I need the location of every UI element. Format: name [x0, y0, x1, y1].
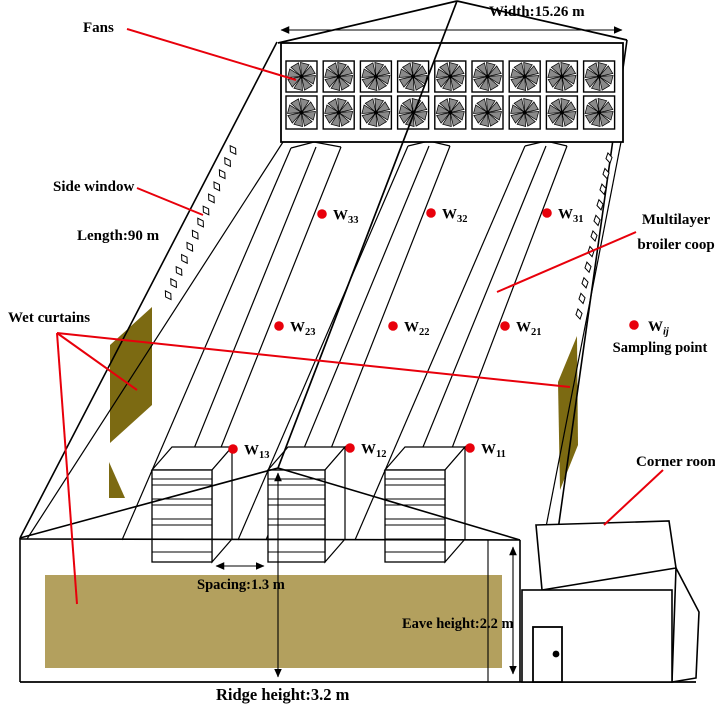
left-eave-line: [20, 42, 277, 538]
fan-icon: [546, 96, 577, 129]
sampling-point: W12: [345, 442, 386, 461]
sampling-point-label: W21: [516, 320, 542, 339]
side-window-icon: [179, 253, 190, 265]
diagram-canvas: W33W32W31W23W22W21W13W12W11 Wij Sampling…: [0, 0, 715, 707]
sampling-dot-icon: [500, 321, 510, 331]
sampling-point: W11: [465, 442, 506, 461]
sampling-point-label: W33: [333, 208, 359, 227]
label-multilayer-1: Multilayer: [642, 212, 711, 228]
broiler-house-diagram: W33W32W31W23W22W21W13W12W11 Wij Sampling…: [0, 0, 715, 707]
cage-rack: [385, 447, 465, 562]
fan-icon: [286, 61, 317, 92]
side-window-icon: [211, 180, 222, 192]
side-window-icon: [168, 277, 179, 289]
door-knob-icon: [553, 651, 560, 658]
sampling-point: W31: [542, 207, 583, 226]
fan-icon: [323, 61, 354, 92]
sampling-legend: Wij Sampling point: [613, 319, 708, 356]
wet-curtain-left-lower: [109, 462, 125, 498]
corner-room-side: [672, 568, 699, 682]
sampling-point: W33: [317, 208, 358, 227]
side-window-icon: [581, 277, 589, 288]
sampling-dot-icon: [345, 443, 355, 453]
side-window-icon: [584, 261, 592, 272]
cage-racks: [152, 447, 465, 562]
front-eave-line: [20, 539, 520, 540]
right-wall-inner-line: [546, 142, 621, 527]
fan-icon: [398, 96, 429, 129]
label-ridge-height: Ridge height:3.2 m: [216, 685, 350, 704]
side-window-icon: [590, 230, 598, 241]
label-fans: Fans: [83, 20, 114, 36]
sampling-point: W13: [228, 443, 269, 462]
side-window-icon: [578, 293, 586, 304]
fan-icon: [509, 61, 540, 92]
corner-room-roof: [536, 521, 676, 590]
legend-dot-icon: [629, 320, 639, 330]
label-multilayer-2: broiler coop: [637, 237, 714, 253]
side-window-icon: [163, 289, 174, 301]
fan-icon: [435, 61, 466, 92]
label-eave-height: Eave height:2.2 m: [402, 616, 514, 632]
side-windows-left: [163, 144, 239, 301]
fan-icon: [472, 96, 503, 129]
label-corner-room: Corner room: [636, 454, 715, 470]
fan-icon: [584, 96, 615, 129]
label-width: Width:15.26 m: [489, 4, 585, 20]
fan-icon: [286, 96, 317, 129]
cage-rack: [152, 447, 232, 562]
side-windows-right: [575, 152, 613, 319]
wet-curtain-leader-front: [57, 333, 77, 604]
sampling-point-label: W31: [558, 207, 584, 226]
side-window-icon: [195, 217, 206, 229]
fan-icon: [323, 96, 354, 129]
side-window-icon: [217, 168, 228, 180]
fan-icon: [584, 61, 615, 92]
legend-symbol: Wij: [648, 319, 669, 338]
label-length: Length:90 m: [77, 228, 160, 244]
sampling-point-label: W11: [481, 442, 506, 461]
side-window-icon: [228, 144, 239, 156]
corner-room: [522, 521, 699, 682]
fan-icon: [435, 96, 466, 129]
sampling-point: W22: [388, 320, 429, 339]
label-side-window: Side window: [53, 179, 134, 195]
side-window-icon: [190, 229, 201, 241]
side-window-leader-line: [137, 188, 203, 215]
fan-icon: [509, 96, 540, 129]
sampling-point-label: W32: [442, 207, 468, 226]
sampling-point-label: W12: [361, 442, 387, 461]
sampling-dot-icon: [542, 208, 552, 218]
sampling-dot-icon: [274, 321, 284, 331]
sampling-dot-icon: [228, 444, 238, 454]
label-spacing: Spacing:1.3 m: [197, 577, 285, 593]
sampling-point-label: W13: [244, 443, 270, 462]
fan-icon: [360, 61, 391, 92]
sampling-point: W23: [274, 320, 315, 339]
corner-room-leader-line: [604, 470, 663, 525]
sampling-dot-icon: [465, 443, 475, 453]
multilayer-leader-line: [497, 232, 636, 292]
side-window-icon: [184, 241, 195, 253]
side-window-icon: [605, 152, 613, 163]
side-window-icon: [222, 156, 233, 168]
side-window-icon: [593, 215, 601, 226]
sampling-dot-icon: [388, 321, 398, 331]
side-window-icon: [575, 308, 583, 319]
side-window-icon: [174, 265, 185, 277]
sampling-point: W21: [500, 320, 541, 339]
label-wet-curtains: Wet curtains: [8, 310, 90, 326]
fan-icon: [360, 96, 391, 129]
fan-icon: [472, 61, 503, 92]
side-window-icon: [206, 192, 217, 204]
sampling-point: W32: [426, 207, 467, 226]
sampling-point-label: W23: [290, 320, 316, 339]
far-roof-left: [278, 1, 457, 43]
sampling-dot-icon: [317, 209, 327, 219]
sampling-point-label: W22: [404, 320, 430, 339]
legend-caption: Sampling point: [613, 340, 708, 356]
sampling-dot-icon: [426, 208, 436, 218]
fan-icon: [546, 61, 577, 92]
